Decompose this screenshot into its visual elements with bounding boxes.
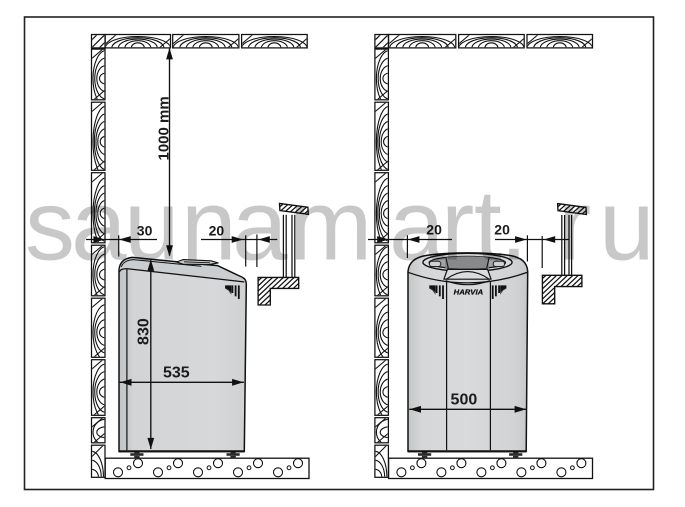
svg-text:1000 mm: 1000 mm <box>155 96 172 160</box>
svg-text:500: 500 <box>451 391 478 408</box>
svg-text:saunamart.ru: saunamart.ru <box>25 170 655 282</box>
svg-text:HARVIA: HARVIA <box>454 288 483 297</box>
svg-text:535: 535 <box>163 364 190 381</box>
svg-text:830: 830 <box>136 318 153 345</box>
